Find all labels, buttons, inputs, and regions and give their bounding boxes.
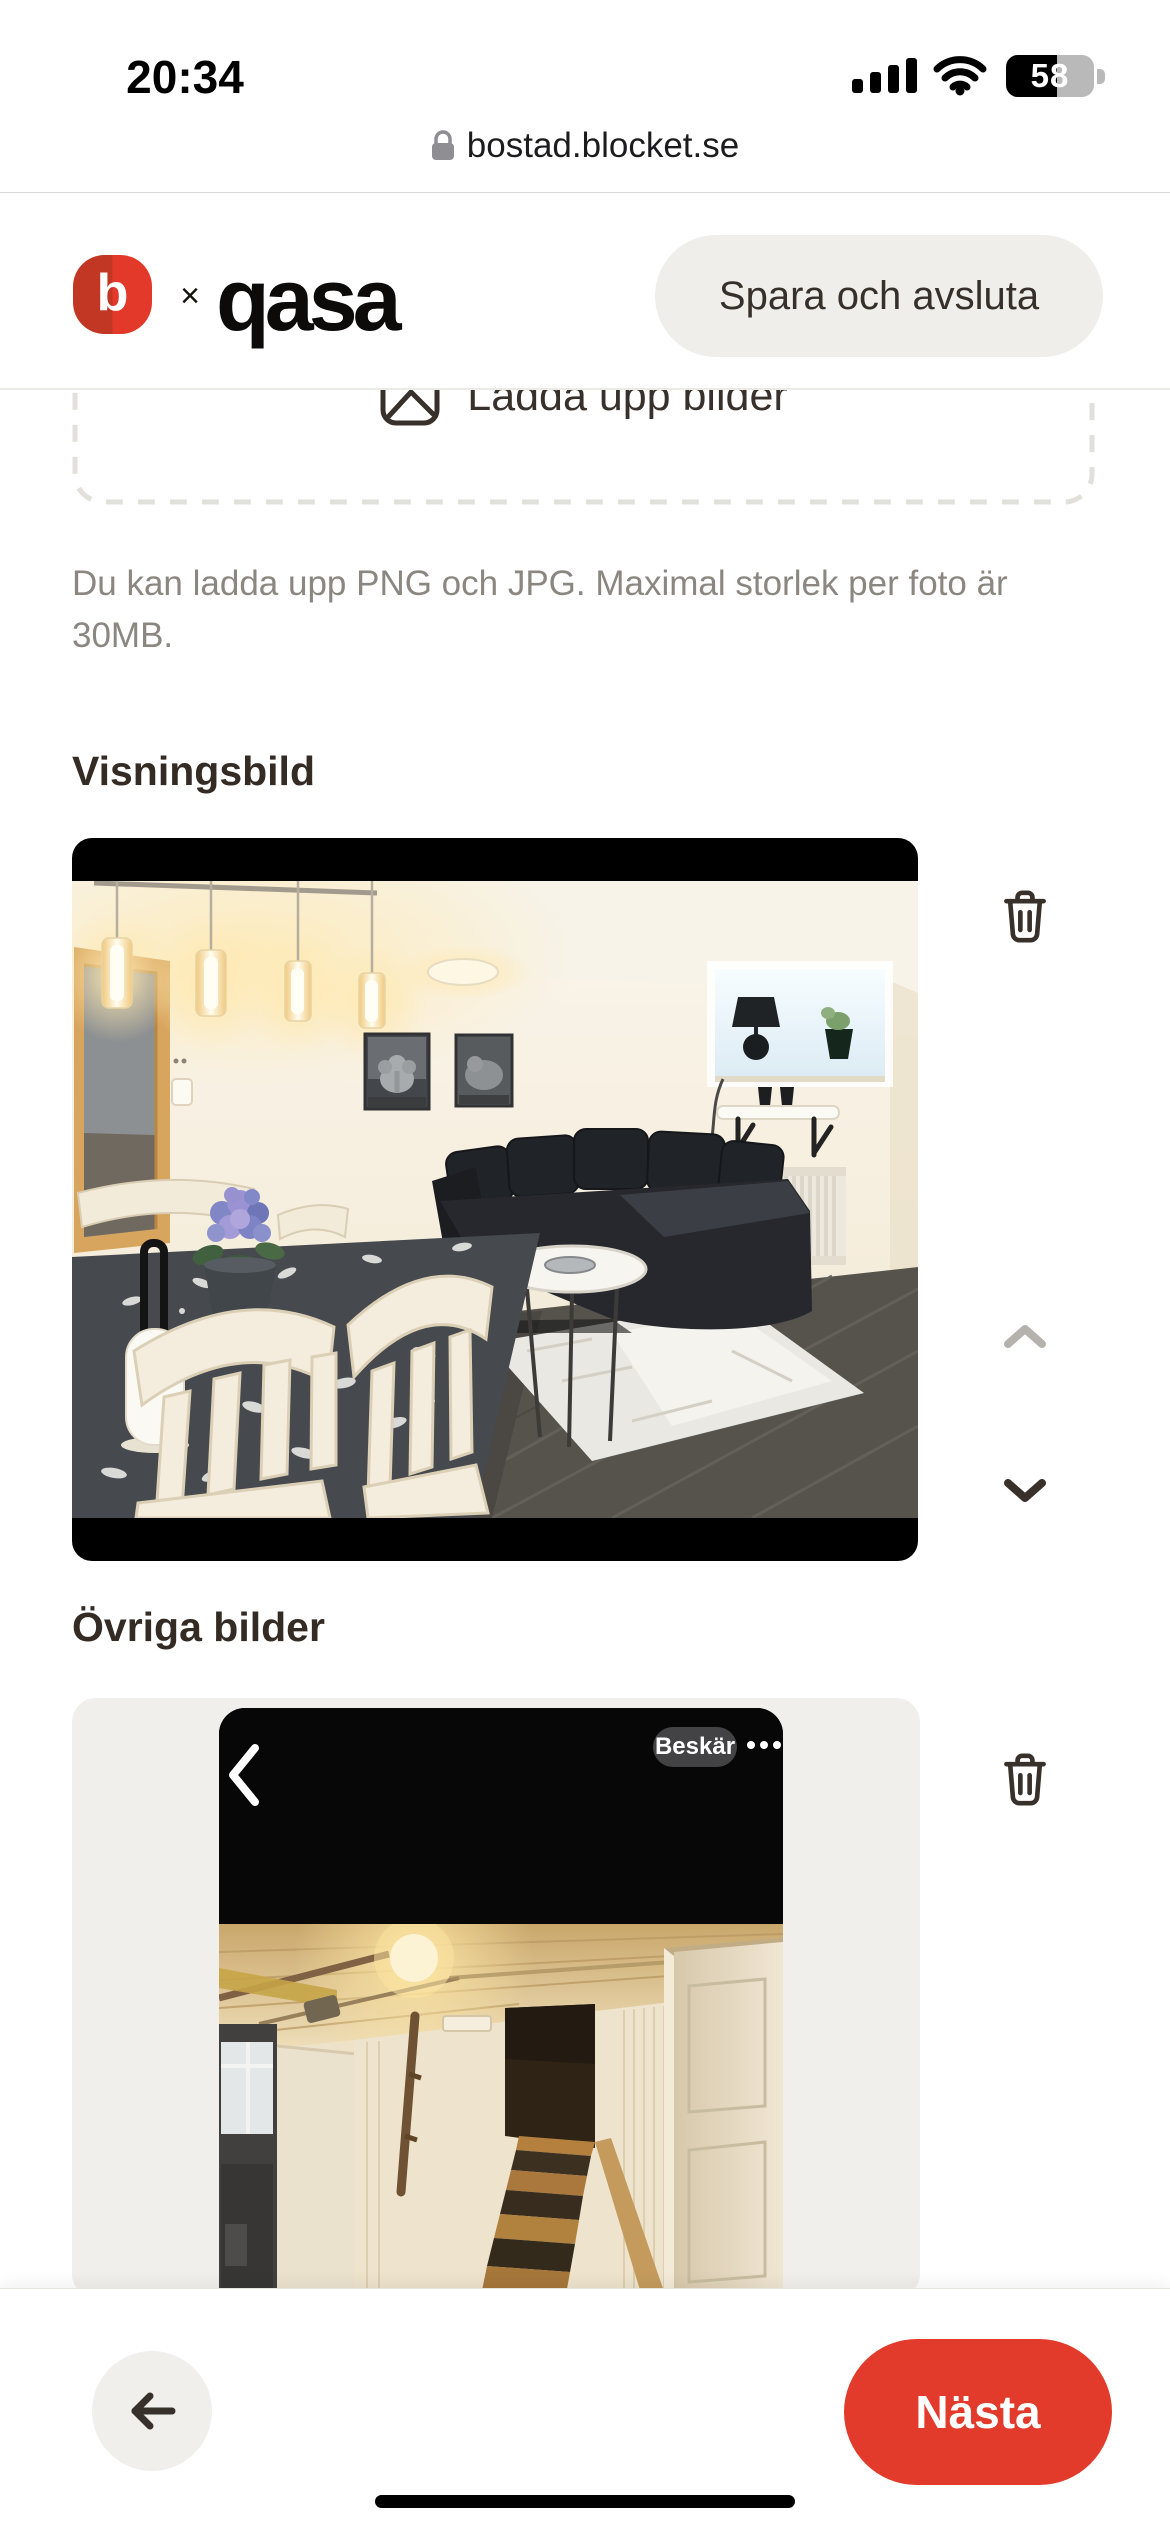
lock-icon (431, 130, 455, 162)
site-header: b × qasa Spara och avsluta (0, 193, 1170, 390)
arrow-left-icon (126, 2389, 178, 2433)
back-button[interactable] (92, 2351, 212, 2471)
embedded-screenshot-header: Beskär (219, 1708, 783, 1924)
url-text: bostad.blocket.se (467, 126, 739, 166)
move-image-up-button[interactable] (1003, 1323, 1047, 1349)
basement-photo (219, 1924, 783, 2298)
battery-icon: 58 (1006, 55, 1094, 97)
status-time: 20:34 (95, 47, 275, 107)
main-photo-living-room (72, 838, 918, 1561)
main-image-section-title: Visningsbild (72, 748, 315, 795)
battery-nub-icon (1097, 69, 1105, 84)
upload-hint: Du kan ladda upp PNG och JPG. Maximal st… (72, 558, 1008, 662)
qasa-wordmark: qasa (216, 249, 397, 351)
delete-main-image-button[interactable] (997, 886, 1053, 946)
embedded-back-chevron-icon (225, 1740, 265, 1810)
embedded-crop-label: Beskär (653, 1727, 737, 1767)
next-button[interactable]: Nästa (844, 2339, 1112, 2485)
blocket-qasa-logo[interactable]: b × qasa (73, 233, 553, 363)
save-and-exit-button[interactable]: Spara och avsluta (655, 235, 1103, 357)
address-bar[interactable]: bostad.blocket.se (0, 106, 1170, 186)
trash-icon (999, 1750, 1051, 1808)
chevron-up-icon (1003, 1323, 1047, 1349)
upload-hint-line1: Du kan ladda upp PNG och JPG. Maximal st… (72, 558, 1008, 610)
chevron-down-icon (1003, 1478, 1047, 1504)
other-images-section-title: Övriga bilder (72, 1604, 325, 1651)
upload-hint-line2: 30MB. (72, 610, 1008, 662)
bottom-action-bar: Nästa (0, 2288, 1170, 2532)
logo-separator: × (170, 277, 210, 316)
blocket-logo-icon: b (73, 255, 152, 334)
wifi-icon (932, 54, 988, 101)
move-image-down-button[interactable] (1003, 1478, 1047, 1504)
home-indicator (375, 2495, 795, 2508)
delete-other-image-button[interactable] (997, 1749, 1053, 1809)
embedded-ellipsis-icon (747, 1741, 781, 1749)
screen: 20:34 58 bostad.blocket.se (0, 0, 1170, 2532)
battery-percentage: 58 (1006, 55, 1094, 97)
cellular-signal-icon (852, 57, 920, 93)
safari-top-bar: 20:34 58 bostad.blocket.se (0, 0, 1170, 193)
uploaded-screenshot-basement: Beskär (219, 1708, 783, 2298)
trash-icon (999, 887, 1051, 945)
other-image-card: Beskär (72, 1698, 920, 2298)
